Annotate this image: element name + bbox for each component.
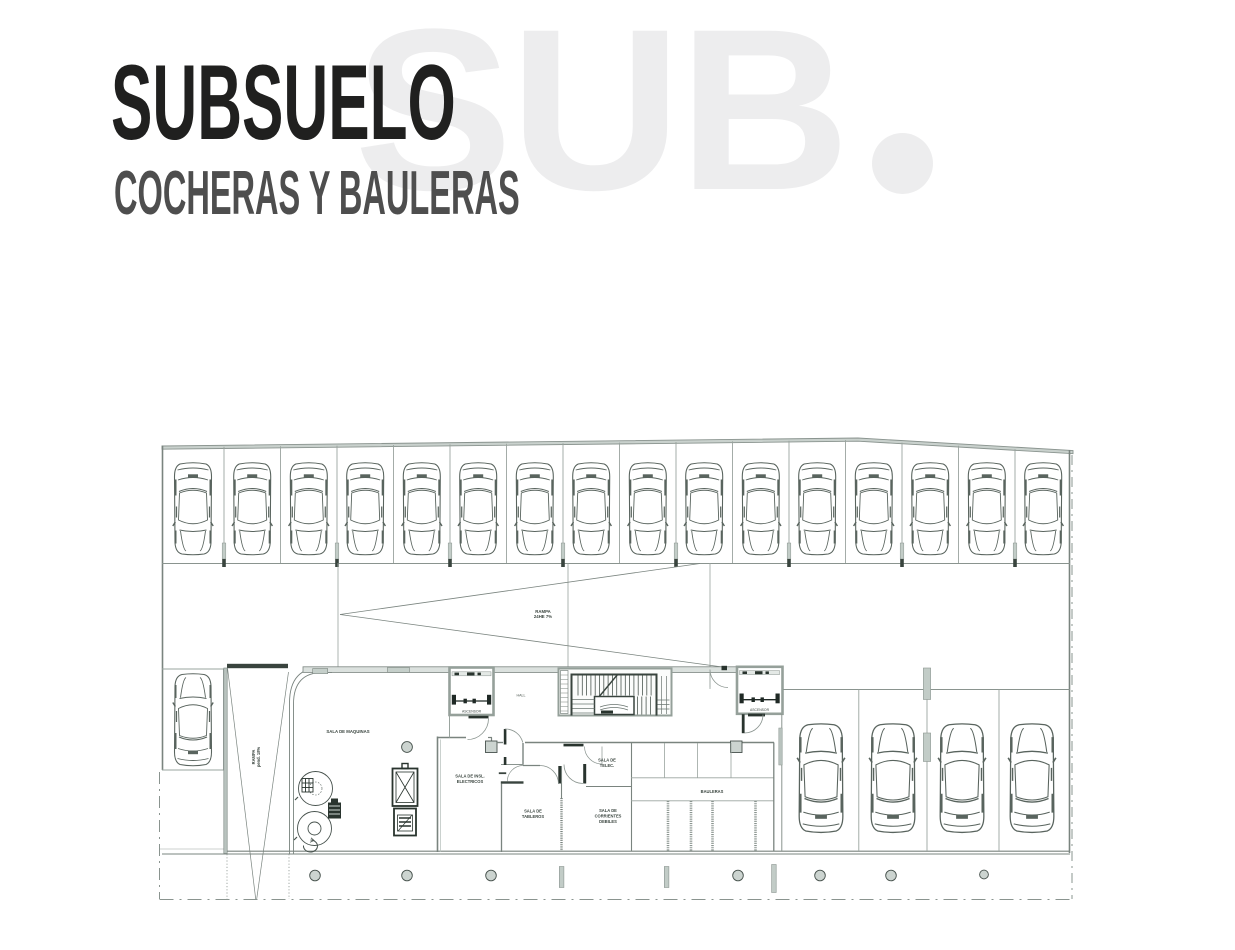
svg-text:CORRIENTES: CORRIENTES [595, 814, 622, 819]
svg-text:SALA DE INSL.: SALA DE INSL. [455, 774, 484, 779]
svg-text:pend. 18%: pend. 18% [256, 747, 261, 768]
svg-text:DEBILES: DEBILES [599, 819, 617, 824]
svg-text:ASCENSOR: ASCENSOR [750, 708, 770, 712]
svg-text:TELEC.: TELEC. [600, 763, 615, 768]
svg-text:SALA DE: SALA DE [599, 808, 617, 813]
svg-text:SALA DE MAQUINAS: SALA DE MAQUINAS [326, 729, 369, 734]
svg-text:HALL: HALL [517, 694, 526, 698]
svg-text:ASCENSOR: ASCENSOR [462, 710, 482, 714]
svg-text:SALA DE: SALA DE [598, 758, 616, 763]
svg-text:TABLEROS: TABLEROS [522, 814, 544, 819]
svg-text:BAULERAS: BAULERAS [701, 789, 724, 794]
svg-text:ELECTRICOS: ELECTRICOS [457, 779, 484, 784]
svg-text:24HE 7%: 24HE 7% [534, 614, 552, 619]
svg-text:SALA DE: SALA DE [524, 809, 542, 814]
